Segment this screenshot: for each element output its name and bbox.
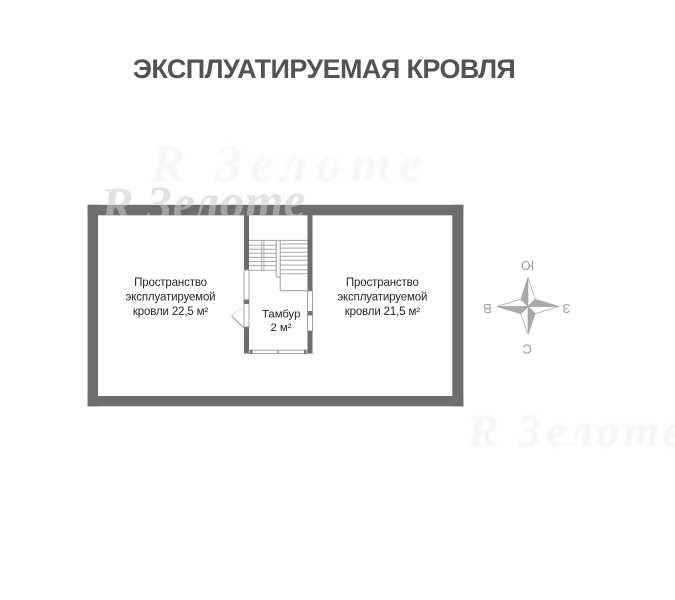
svg-text:Пространство: Пространство	[134, 277, 207, 289]
svg-text:эксплуатируемой: эксплуатируемой	[337, 292, 427, 304]
svg-text:кровли 22,5 м²: кровли 22,5 м²	[133, 306, 209, 318]
svg-text:R Зелоте: R Зелоте	[467, 405, 675, 456]
svg-text:ЭКСПЛУАТИРУЕМАЯ КРОВЛЯ: ЭКСПЛУАТИРУЕМАЯ КРОВЛЯ	[133, 54, 515, 84]
svg-text:эксплуатируемой: эксплуатируемой	[126, 292, 216, 304]
svg-text:2 м²: 2 м²	[271, 322, 292, 334]
svg-text:Тамбур: Тамбур	[262, 309, 300, 321]
svg-text:З: З	[562, 301, 570, 316]
svg-text:Пространство: Пространство	[346, 277, 419, 289]
svg-text:В: В	[483, 301, 492, 316]
svg-text:Ю: Ю	[521, 258, 534, 273]
svg-text:кровли 21,5 м²: кровли 21,5 м²	[345, 306, 421, 318]
svg-text:С: С	[523, 342, 532, 357]
